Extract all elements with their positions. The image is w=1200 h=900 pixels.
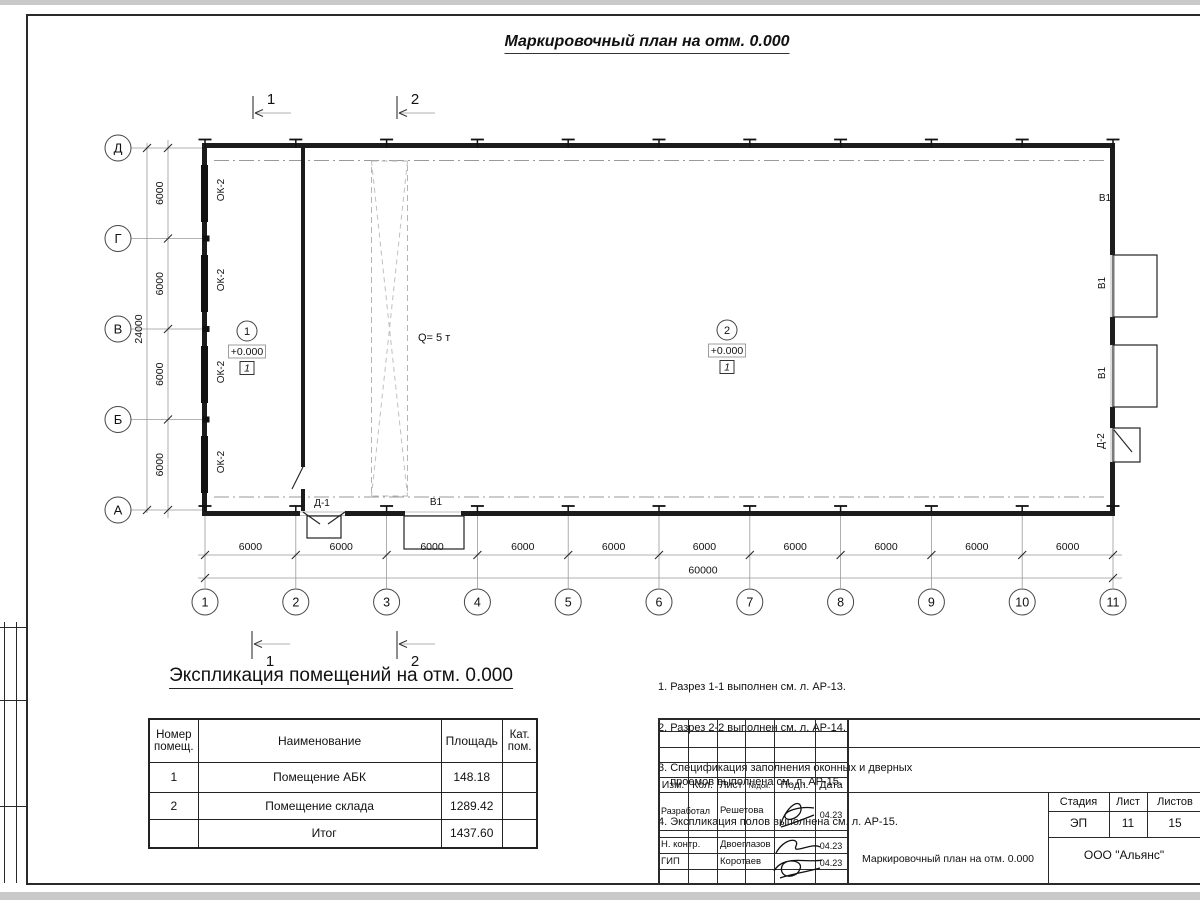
tb-role: ГИП bbox=[661, 857, 717, 868]
gate-mark-label: В1 bbox=[1097, 276, 1108, 289]
dimension-label: 6000 bbox=[602, 541, 626, 553]
window-mark bbox=[201, 255, 208, 312]
tb-name: Решетова bbox=[720, 806, 774, 817]
tb-sheets-label: Листов bbox=[1147, 796, 1200, 809]
col-header: Номер помещ. bbox=[149, 719, 198, 762]
door-leaf bbox=[292, 467, 303, 489]
wall-internal bbox=[301, 148, 305, 467]
wall-bottom bbox=[345, 511, 405, 516]
axis-circle-label: 9 bbox=[928, 596, 935, 610]
dimension-label: 6000 bbox=[154, 272, 166, 296]
door-leaf bbox=[328, 512, 345, 524]
col-header: Площадь bbox=[441, 719, 502, 762]
column-mark bbox=[203, 326, 210, 332]
tb-sheet-label: Лист bbox=[1109, 796, 1147, 809]
section-arrow bbox=[399, 644, 407, 648]
door-mark-label: Д-1 bbox=[314, 498, 330, 509]
room-cat bbox=[502, 792, 537, 819]
side-stamp-line bbox=[0, 700, 27, 701]
dimension-label: 6000 bbox=[784, 541, 808, 553]
dock bbox=[1113, 255, 1157, 317]
window-mark bbox=[201, 165, 208, 222]
tb-col-izm: Изм. bbox=[658, 779, 688, 791]
titleblock-line bbox=[717, 718, 718, 884]
titleblock-line bbox=[658, 747, 1200, 748]
section-arrow bbox=[254, 641, 262, 645]
crane-diagonal bbox=[372, 161, 408, 496]
window-mark-label: ОК-2 bbox=[216, 268, 227, 291]
tb-doc-title: Маркировочный план на отм. 0.000 bbox=[850, 853, 1046, 865]
door-leaf bbox=[303, 512, 320, 524]
room-name: Помещение АБК bbox=[198, 762, 441, 792]
total-label: Итог bbox=[198, 819, 441, 848]
signature bbox=[776, 797, 818, 832]
room-number: 1 bbox=[244, 326, 250, 338]
dimension-label: 60000 bbox=[688, 565, 717, 577]
axis-circle-label: Д bbox=[114, 141, 123, 156]
section-arrow bbox=[399, 641, 407, 645]
tb-col-podp: Подп. bbox=[774, 779, 815, 791]
axis-circle-label: 4 bbox=[474, 596, 481, 610]
room-area: 148.18 bbox=[441, 762, 502, 792]
dimension-label: 6000 bbox=[693, 541, 717, 553]
window-mark-label: ОК-2 bbox=[216, 360, 227, 383]
tb-role: Разработал bbox=[661, 806, 717, 816]
crane-outline bbox=[372, 161, 408, 496]
tb-name: Коротаев bbox=[720, 857, 774, 868]
schedule-title: Экспликация помещений на отм. 0.000 bbox=[169, 665, 513, 689]
axis-circle-label: Б bbox=[114, 412, 123, 427]
titleblock-line bbox=[658, 762, 847, 763]
tb-stage-label: Стадия bbox=[1048, 796, 1109, 809]
side-stamp-line bbox=[0, 806, 27, 807]
tb-col-kol: Кол. bbox=[688, 779, 717, 791]
axis-circle-label: 8 bbox=[837, 596, 844, 610]
dimension-label: 6000 bbox=[420, 541, 444, 553]
window-mark bbox=[201, 346, 208, 403]
titleblock-line bbox=[1048, 837, 1200, 838]
room-no: 2 bbox=[149, 792, 198, 819]
axis-circle-label: 7 bbox=[746, 596, 753, 610]
gate-mark-label: В1 bbox=[430, 497, 443, 508]
tb-col-list: Лист bbox=[717, 779, 745, 791]
door-mark-label: Д-2 bbox=[1096, 433, 1107, 449]
axis-circle-label: 6 bbox=[656, 596, 663, 610]
tb-stage-value: ЭП bbox=[1048, 817, 1109, 831]
wall-bottom bbox=[461, 511, 1115, 516]
window-mark-label: ОК-2 bbox=[216, 178, 227, 201]
note-item: 1. Разрез 1-1 выполнен см. л. АР-13. bbox=[658, 681, 912, 695]
floor-plan: ДГВБА60006000600060002400012345678910116… bbox=[0, 0, 1200, 680]
room-number: 2 bbox=[724, 325, 730, 337]
tb-sheet-value: 11 bbox=[1109, 817, 1147, 831]
tb-company: ООО "Альянс" bbox=[1048, 849, 1200, 863]
axis-circle-label: 10 bbox=[1015, 596, 1029, 610]
tb-col-data: Дата bbox=[815, 779, 847, 791]
titleblock-line bbox=[658, 718, 1200, 720]
room-area: 1289.42 bbox=[441, 792, 502, 819]
dimension-label: 6000 bbox=[154, 181, 166, 205]
titleblock-line bbox=[1048, 811, 1200, 812]
room-name: Помещение склада bbox=[198, 792, 441, 819]
gate-mark-label: В1 bbox=[1099, 193, 1112, 204]
dimension-label: 6000 bbox=[154, 362, 166, 386]
col-header: Кат. пом. bbox=[502, 719, 537, 762]
bottom-edge-strip bbox=[0, 892, 1200, 900]
window-mark bbox=[201, 436, 208, 493]
crane-diagonal bbox=[372, 161, 408, 496]
axis-circle-label: 2 bbox=[292, 596, 299, 610]
table-row: 2 Помещение склада 1289.42 bbox=[149, 792, 537, 819]
room-cat bbox=[502, 819, 537, 848]
tb-col-ndok: №док. bbox=[745, 782, 774, 791]
titleblock-line bbox=[847, 718, 849, 884]
dimension-label: 6000 bbox=[1056, 541, 1080, 553]
wall-right bbox=[1110, 407, 1115, 428]
table-row: Итог 1437.60 bbox=[149, 819, 537, 848]
section-arrow bbox=[399, 110, 407, 114]
window-mark-label: ОК-2 bbox=[216, 450, 227, 473]
titleblock-line bbox=[658, 731, 847, 732]
tb-date: 04.23 bbox=[815, 810, 847, 820]
drawing-sheet: Маркировочный план на отм. 0.000 ДГВБА60… bbox=[0, 0, 1200, 900]
section-mark-number: 1 bbox=[267, 91, 275, 108]
tb-sheets-value: 15 bbox=[1147, 817, 1200, 831]
section-mark-number: 2 bbox=[411, 91, 419, 108]
vestibule bbox=[307, 516, 341, 538]
room-cat bbox=[502, 762, 537, 792]
wall-right bbox=[1110, 317, 1115, 345]
axis-circle-label: Г bbox=[114, 231, 121, 246]
axis-circle-label: 5 bbox=[565, 596, 572, 610]
dimension-label: 24000 bbox=[133, 314, 145, 343]
axis-circle-label: В bbox=[114, 322, 123, 337]
column-mark bbox=[203, 236, 210, 242]
tb-role: Н. контр. bbox=[661, 840, 717, 851]
door-leaf bbox=[1114, 430, 1132, 452]
elevation-mark: +0.000 bbox=[231, 346, 264, 358]
section-arrow bbox=[255, 110, 263, 114]
table-row: 1 Помещение АБК 148.18 bbox=[149, 762, 537, 792]
dock bbox=[1113, 345, 1157, 407]
dimension-label: 6000 bbox=[330, 541, 354, 553]
note-item: 2. Разрез 2-2 выполнен см. л. АР-14. bbox=[658, 722, 912, 736]
dimension-label: 6000 bbox=[965, 541, 989, 553]
axis-circle-label: 3 bbox=[383, 596, 390, 610]
section-arrow bbox=[254, 644, 262, 648]
column-mark bbox=[203, 417, 210, 423]
axis-circle-label: 1 bbox=[202, 596, 209, 610]
gate-mark-label: В1 bbox=[1097, 366, 1108, 379]
room-no: 1 bbox=[149, 762, 198, 792]
dimension-label: 6000 bbox=[239, 541, 263, 553]
section-arrow bbox=[255, 113, 263, 117]
axis-circle-label: А bbox=[114, 503, 123, 518]
titleblock-line bbox=[658, 718, 660, 884]
wall-internal bbox=[301, 489, 305, 511]
room-no bbox=[149, 819, 198, 848]
dimension-label: 6000 bbox=[511, 541, 535, 553]
titleblock-line bbox=[658, 777, 847, 778]
total-area: 1437.60 bbox=[441, 819, 502, 848]
floor-type-mark: 1 bbox=[724, 362, 730, 374]
frame-bottom bbox=[26, 883, 1200, 885]
dimension-label: 6000 bbox=[874, 541, 898, 553]
room-schedule-table: Номер помещ. Наименование Площадь Кат. п… bbox=[148, 718, 538, 849]
titleblock-line bbox=[658, 830, 847, 831]
wall-bottom bbox=[202, 511, 300, 516]
dimension-label: 6000 bbox=[154, 453, 166, 477]
titleblock-line bbox=[658, 792, 1200, 793]
axis-circle-label: 11 bbox=[1107, 596, 1120, 610]
col-header: Наименование bbox=[198, 719, 441, 762]
elevation-mark: +0.000 bbox=[711, 345, 744, 357]
signature bbox=[770, 835, 826, 882]
section-arrow bbox=[399, 113, 407, 117]
floor-type-mark: 1 bbox=[244, 363, 250, 375]
crane-capacity-label: Q= 5 т bbox=[418, 332, 450, 344]
